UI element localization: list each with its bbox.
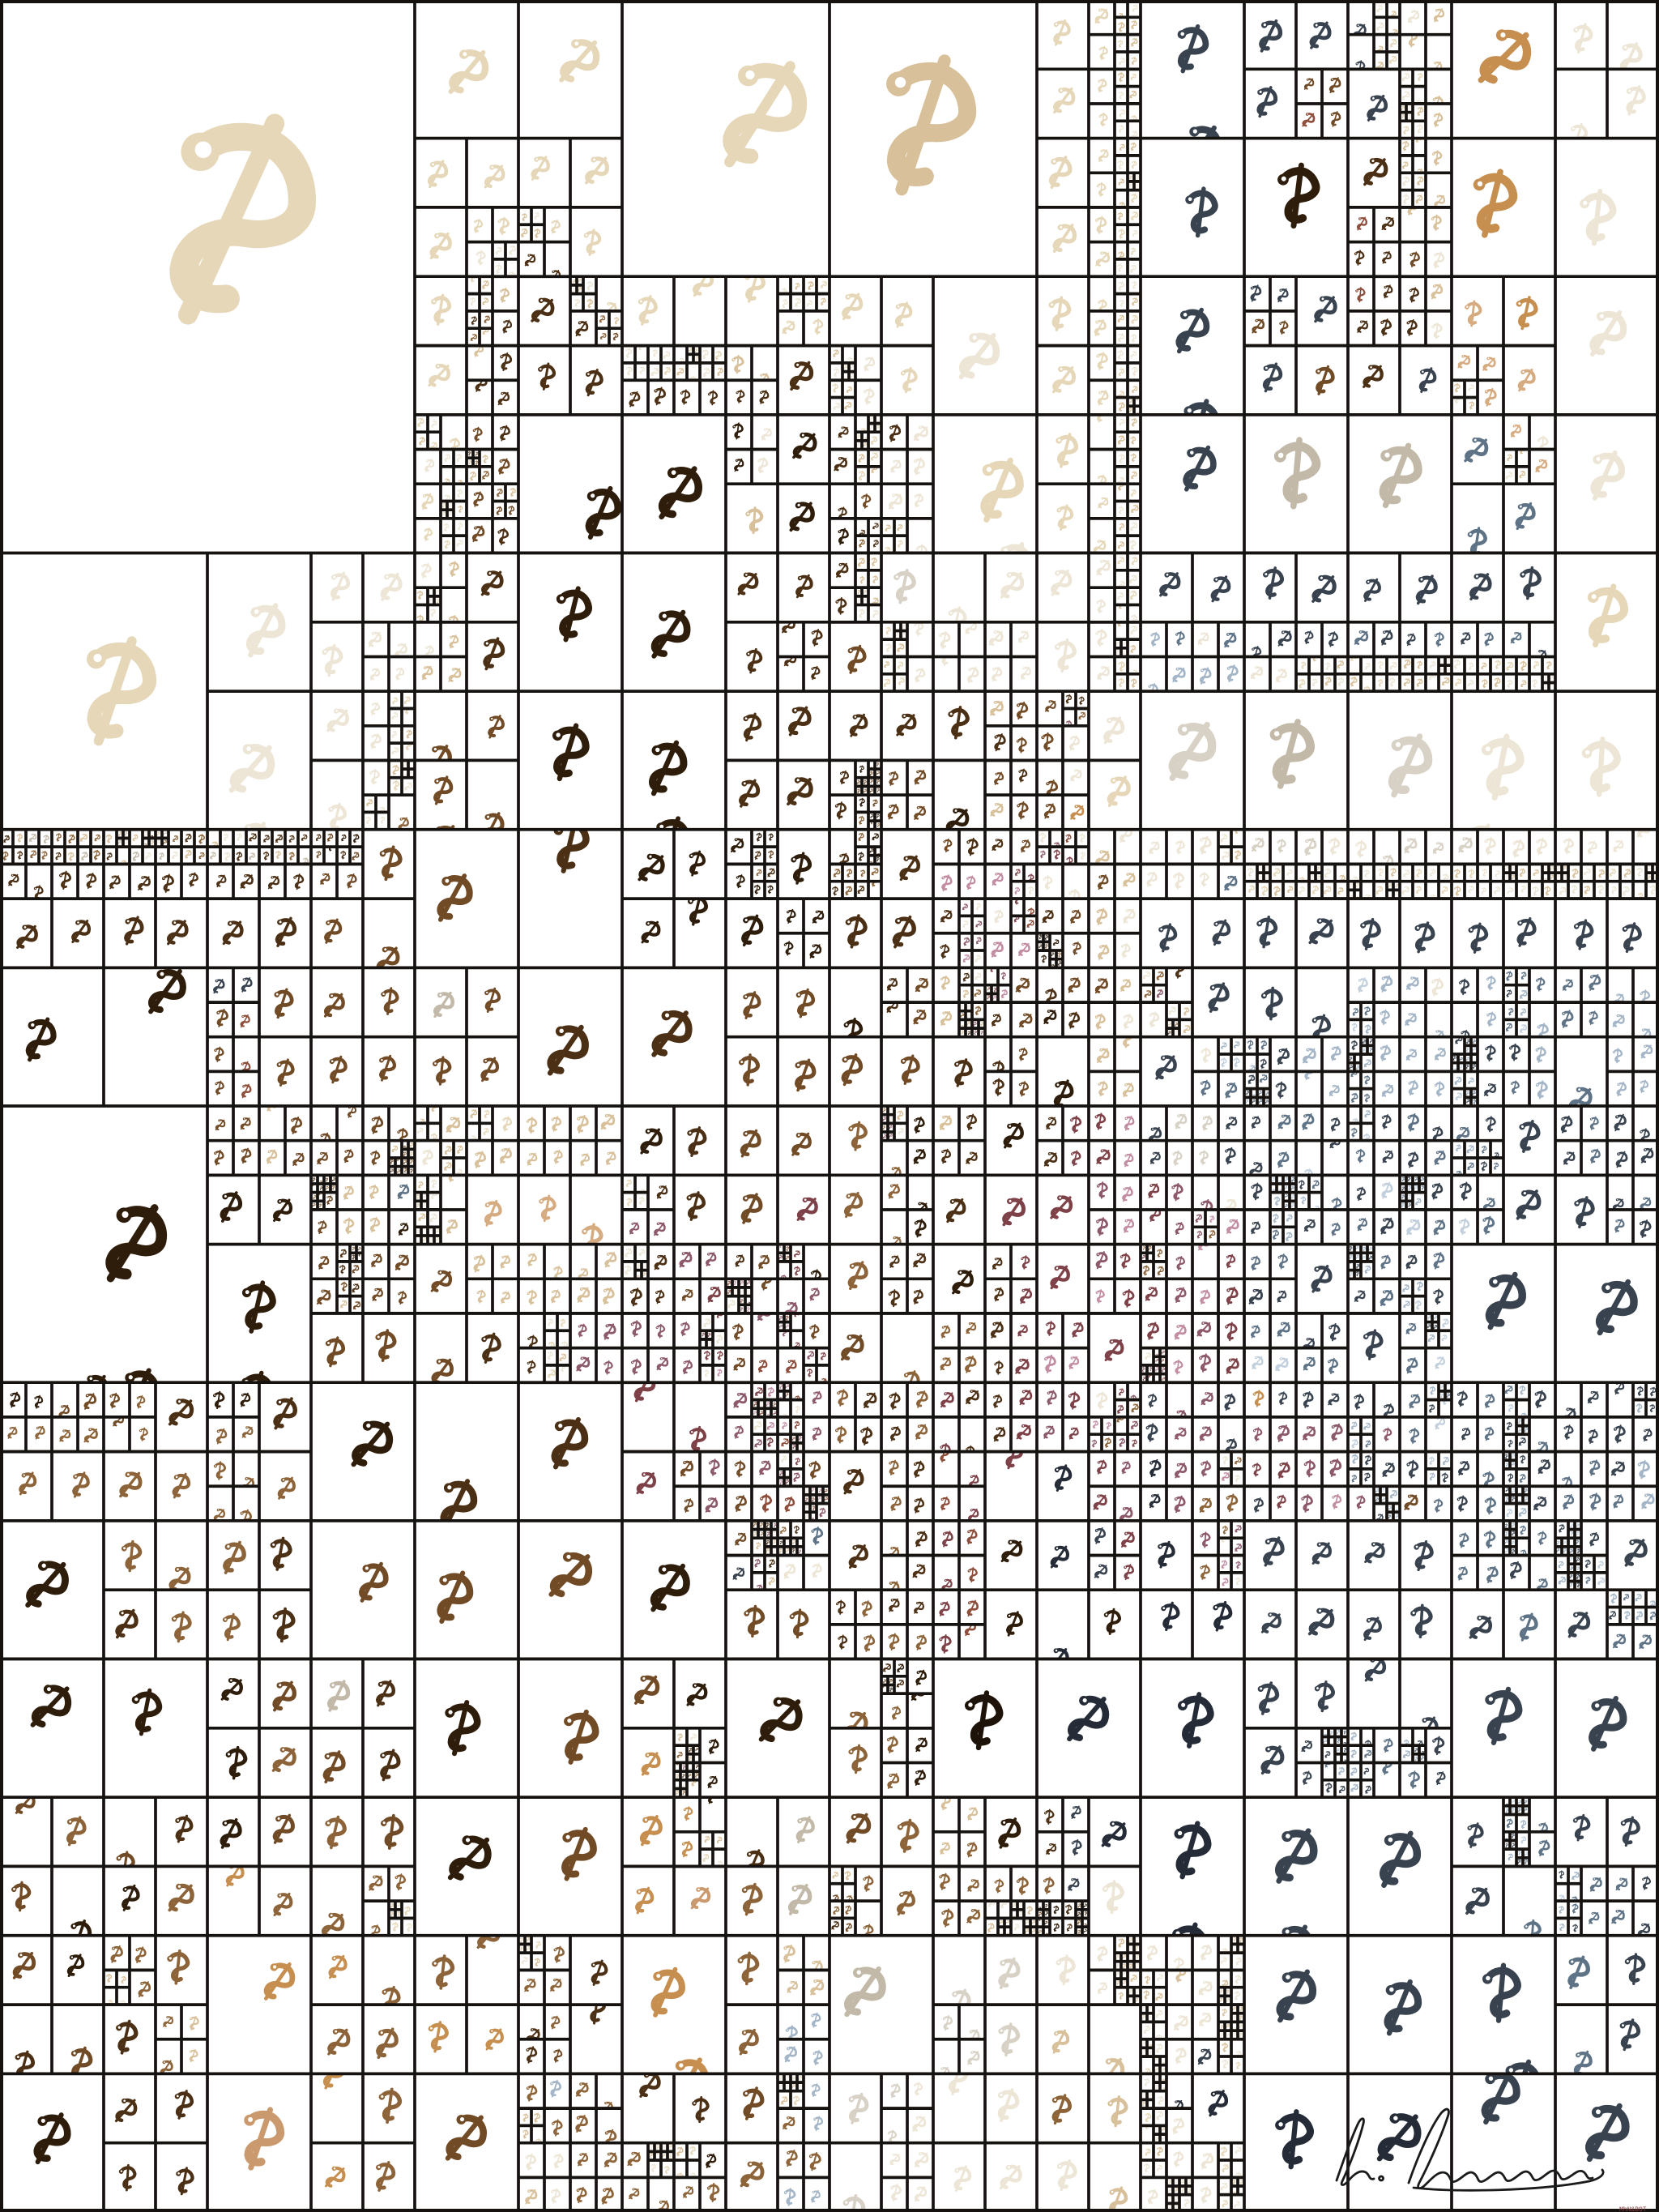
svg-text:MhN&BOT: MhN&BOT bbox=[1619, 2206, 1647, 2212]
